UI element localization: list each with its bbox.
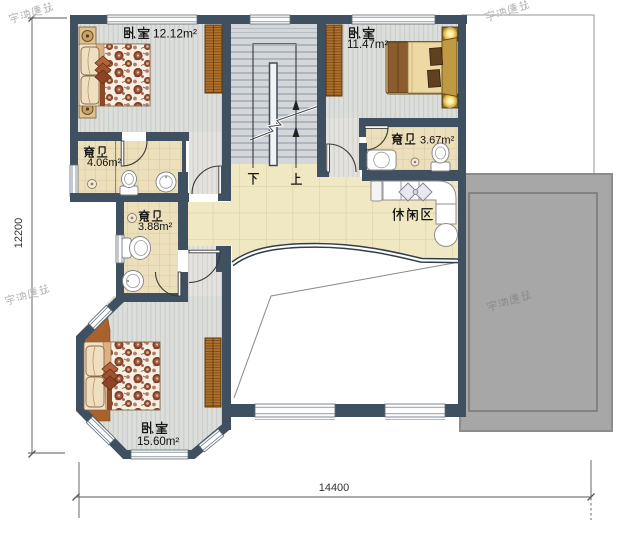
svg-text:3.67m²: 3.67m²	[420, 135, 455, 147]
svg-text:12.12m²: 12.12m²	[153, 27, 197, 41]
svg-text:11.47m²: 11.47m²	[347, 39, 389, 51]
svg-text:15.60m²: 15.60m²	[137, 436, 179, 448]
svg-text:14400: 14400	[319, 482, 350, 494]
svg-text:12200: 12200	[13, 218, 25, 249]
svg-text:4.06m²: 4.06m²	[87, 157, 122, 169]
svg-text:3.88m²: 3.88m²	[138, 221, 173, 233]
